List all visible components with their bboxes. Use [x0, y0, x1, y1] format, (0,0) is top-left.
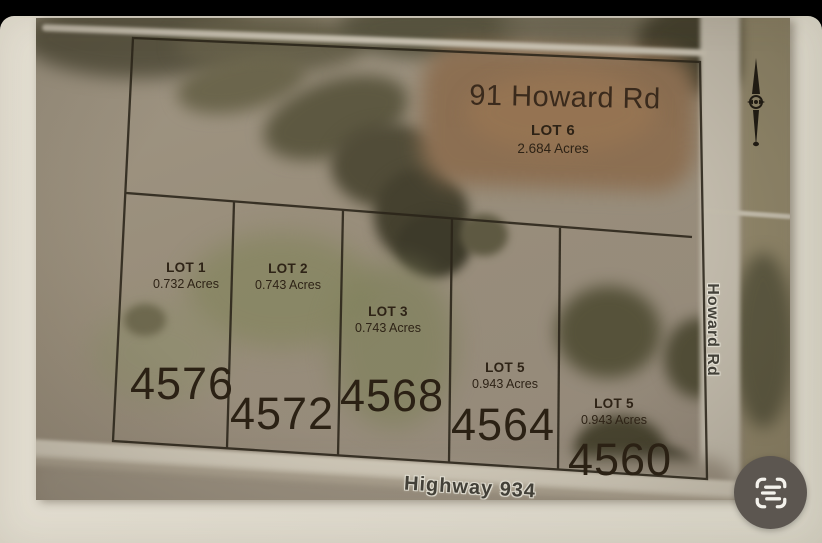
house-number-4568: 4568 — [340, 370, 444, 422]
lot-5-parcel-name: LOT 5 — [581, 396, 647, 413]
lot-3-acres: 0.743 Acres — [355, 321, 421, 337]
plat-address-title: 91 Howard Rd — [469, 79, 661, 116]
lot-4-parcel-label: LOT 5 0.943 Acres — [472, 360, 538, 393]
lot-1-name: LOT 1 — [153, 260, 219, 277]
lot-5-parcel-acres: 0.943 Acres — [581, 413, 647, 429]
aerial-imagery: 91 Howard Rd LOT 6 2.684 Acres LOT 1 0.7… — [36, 18, 790, 500]
lot-4-parcel-name: LOT 5 — [472, 360, 538, 377]
house-number-4560: 4560 — [568, 434, 672, 486]
lot-2-label: LOT 2 0.743 Acres — [255, 261, 321, 294]
scan-text-icon — [753, 475, 789, 511]
north-arrow-icon — [743, 56, 769, 148]
lot-4-parcel-acres: 0.943 Acres — [472, 377, 538, 393]
plat-map-photo[interactable]: 91 Howard Rd LOT 6 2.684 Acres LOT 1 0.7… — [0, 16, 822, 543]
house-number-4572: 4572 — [230, 388, 334, 440]
lot-5-parcel-label: LOT 5 0.943 Acres — [581, 396, 647, 429]
house-number-4564: 4564 — [451, 399, 555, 451]
scan-text-button[interactable] — [734, 456, 807, 529]
lot-3-name: LOT 3 — [355, 304, 421, 321]
plat-boundary-lines — [36, 18, 790, 500]
lot-2-acres: 0.743 Acres — [255, 278, 321, 294]
howard-rd-road-label: Howard Rd — [703, 283, 721, 376]
lot-3-label: LOT 3 0.743 Acres — [355, 304, 421, 337]
lot-2-name: LOT 2 — [255, 261, 321, 278]
lot-1-label: LOT 1 0.732 Acres — [153, 260, 219, 293]
house-number-4576: 4576 — [130, 358, 234, 410]
lot-1-acres: 0.732 Acres — [153, 277, 219, 293]
lot-6-name: LOT 6 — [517, 122, 588, 141]
lot-6-acres: 2.684 Acres — [517, 141, 588, 158]
lot-6-label: LOT 6 2.684 Acres — [517, 122, 588, 158]
